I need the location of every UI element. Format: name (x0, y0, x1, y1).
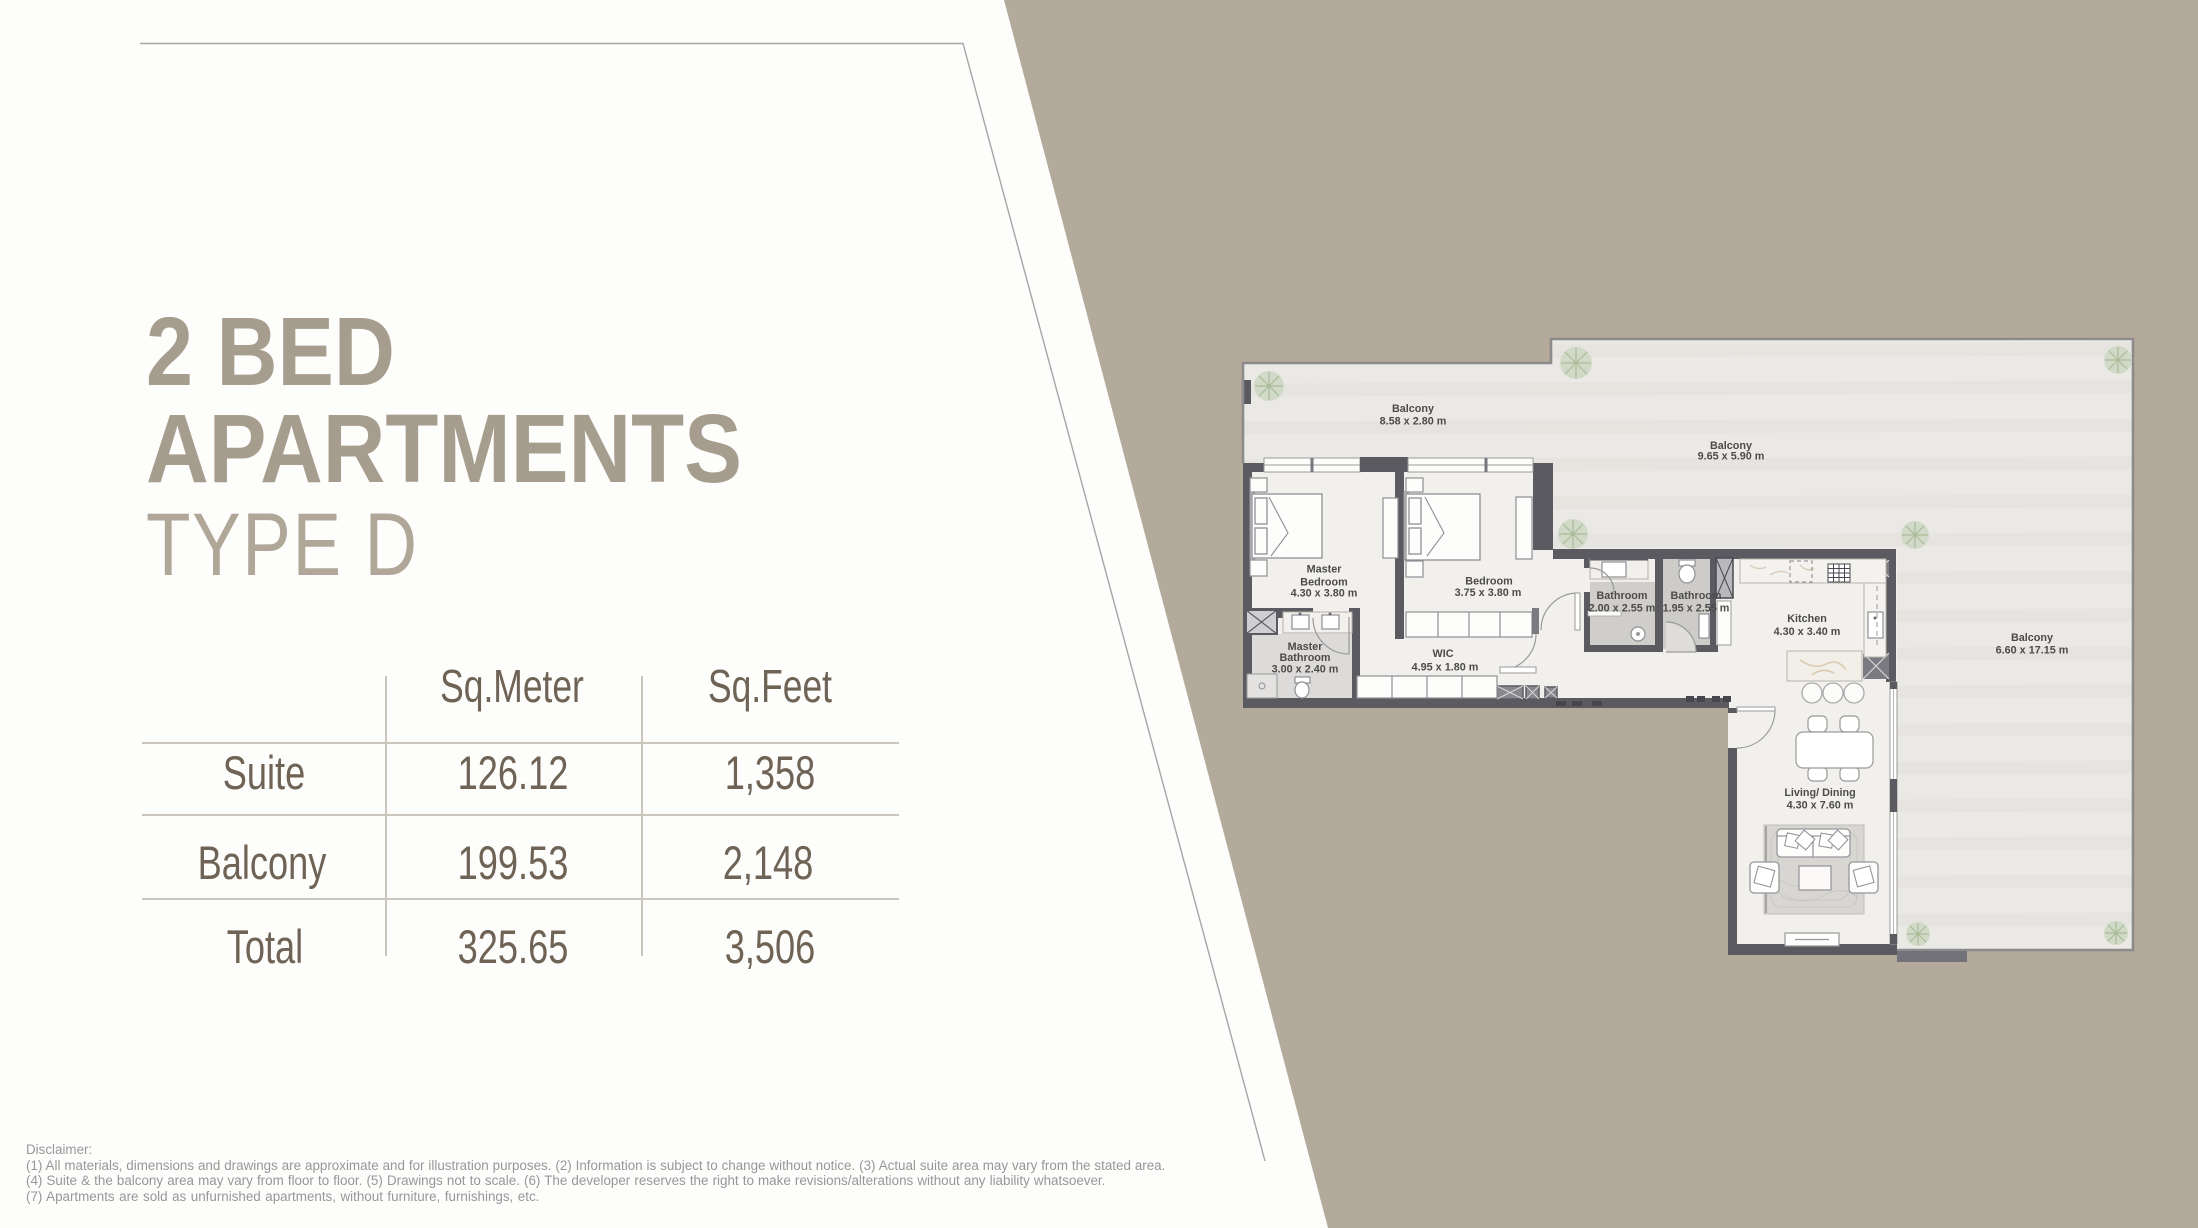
svg-text:4.30 x 3.80 m: 4.30 x 3.80 m (1291, 588, 1358, 600)
svg-text:4.30 x 7.60 m: 4.30 x 7.60 m (1787, 800, 1854, 812)
svg-text:1.95 x 2.55 m: 1.95 x 2.55 m (1663, 603, 1730, 615)
svg-text:Living/ Dining: Living/ Dining (1784, 787, 1855, 799)
svg-text:8.58 x 2.80 m: 8.58 x 2.80 m (1380, 416, 1447, 428)
svg-text:Balcony: Balcony (2011, 632, 2053, 644)
svg-text:3.75 x 3.80 m: 3.75 x 3.80 m (1455, 587, 1522, 599)
svg-text:WIC: WIC (1433, 648, 1454, 660)
svg-text:Bathroom: Bathroom (1280, 652, 1331, 664)
svg-text:6.60 x 17.15 m: 6.60 x 17.15 m (1996, 645, 2069, 657)
svg-text:Kitchen: Kitchen (1787, 613, 1827, 625)
svg-text:Bedroom: Bedroom (1465, 576, 1512, 588)
svg-text:2.00 x 2.55 m: 2.00 x 2.55 m (1589, 603, 1656, 615)
svg-text:Balcony: Balcony (1392, 403, 1434, 415)
svg-text:4.30 x 3.40 m: 4.30 x 3.40 m (1774, 626, 1841, 638)
svg-text:9.65 x 5.90 m: 9.65 x 5.90 m (1698, 451, 1765, 463)
svg-text:3.00 x 2.40 m: 3.00 x 2.40 m (1272, 664, 1339, 676)
svg-text:Master: Master (1307, 564, 1343, 576)
svg-text:Bathroom: Bathroom (1597, 590, 1648, 602)
svg-text:4.95 x 1.80 m: 4.95 x 1.80 m (1412, 662, 1479, 674)
svg-text:Bathroom: Bathroom (1671, 590, 1722, 602)
